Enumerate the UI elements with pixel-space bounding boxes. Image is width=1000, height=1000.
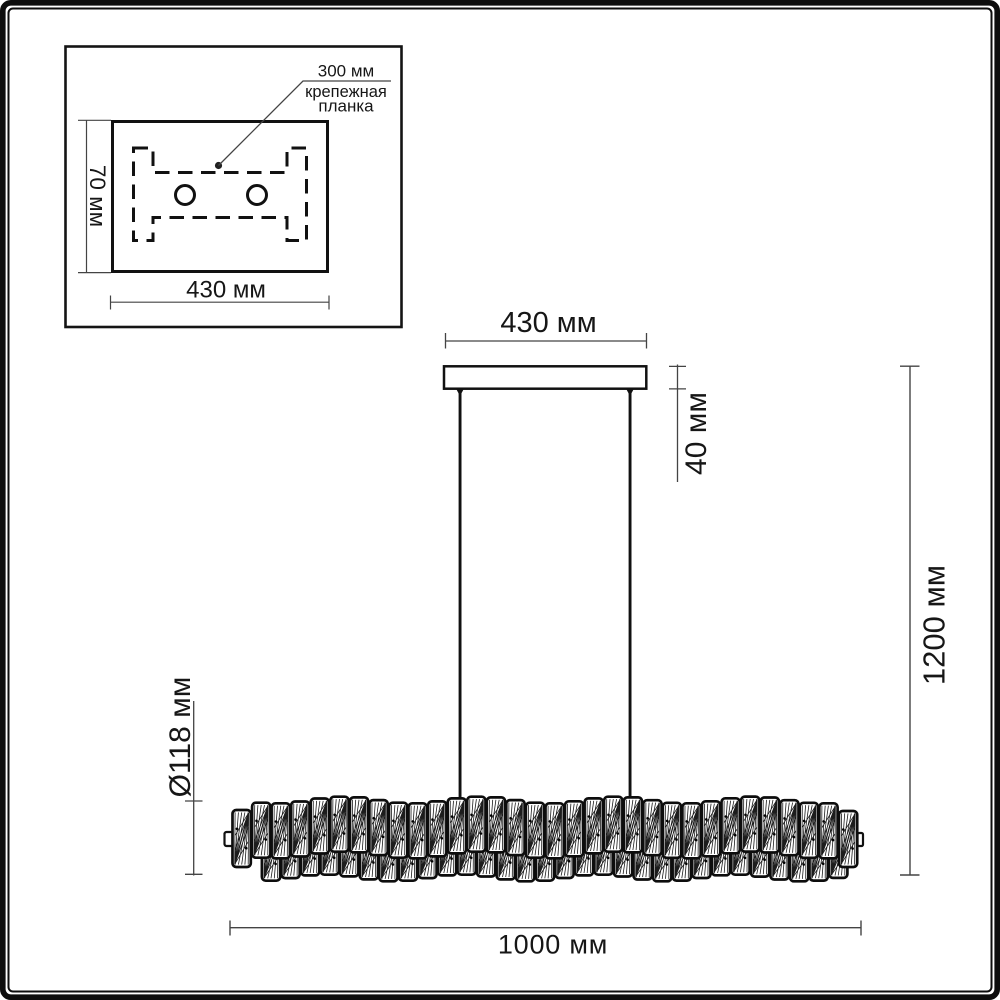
svg-text:1200 мм: 1200 мм: [917, 565, 952, 685]
svg-text:1000 мм: 1000 мм: [498, 930, 608, 960]
svg-text:Ø118 мм: Ø118 мм: [164, 677, 197, 798]
svg-text:40 мм: 40 мм: [680, 392, 713, 475]
svg-text:планка: планка: [318, 97, 374, 116]
svg-text:430 мм: 430 мм: [186, 276, 266, 303]
svg-text:300 мм: 300 мм: [318, 62, 374, 81]
svg-text:430 мм: 430 мм: [500, 307, 596, 339]
svg-text:70 мм: 70 мм: [85, 165, 110, 227]
